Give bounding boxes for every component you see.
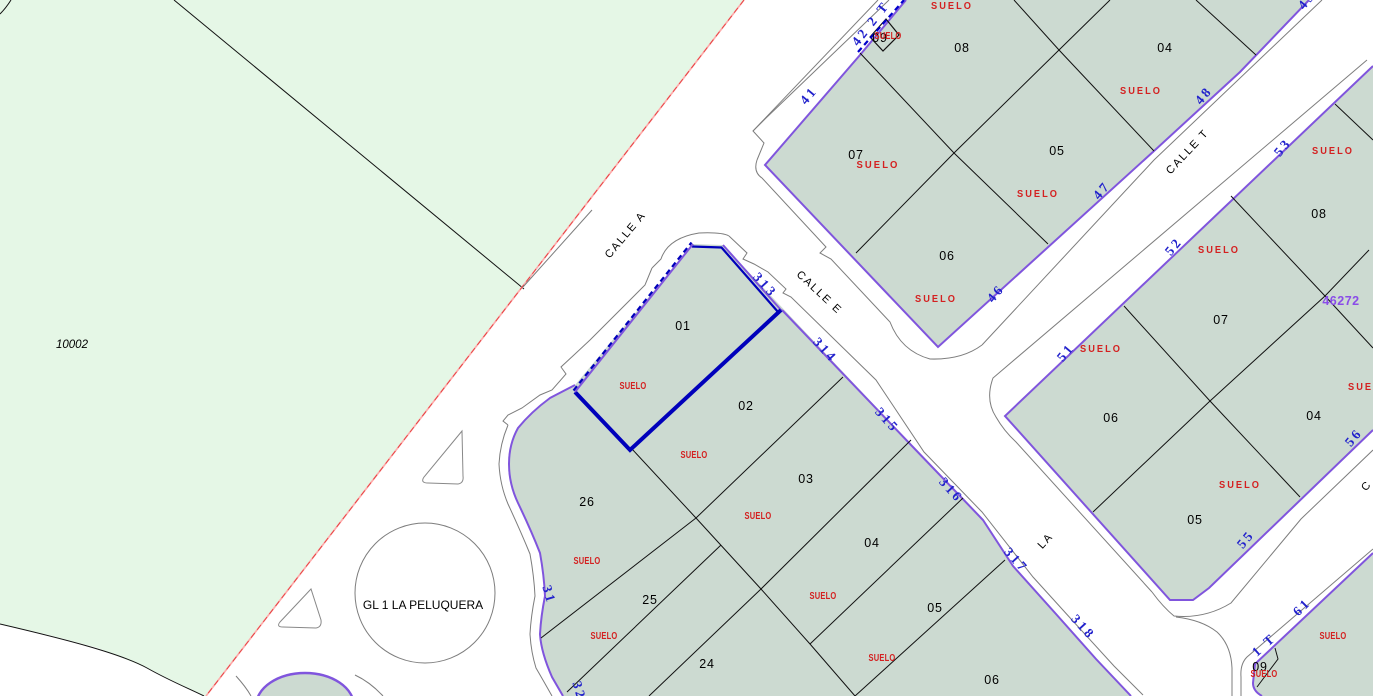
svg-text:SUELO: SUELO	[1320, 631, 1347, 642]
svg-text:24: 24	[699, 657, 715, 671]
svg-text:SUELO: SUELO	[1219, 480, 1261, 491]
svg-text:SUELO: SUELO	[620, 381, 647, 392]
svg-text:SUELO: SUELO	[1080, 344, 1122, 355]
svg-text:02: 02	[738, 399, 754, 413]
svg-text:04: 04	[1306, 409, 1322, 423]
svg-text:SUELO: SUELO	[1198, 245, 1240, 256]
svg-text:07: 07	[1213, 313, 1229, 327]
svg-text:04: 04	[1157, 41, 1173, 55]
svg-text:08: 08	[954, 41, 970, 55]
svg-text:SUELO: SUELO	[915, 294, 957, 305]
svg-text:06: 06	[939, 249, 955, 263]
svg-text:06: 06	[984, 673, 1000, 687]
svg-text:SUELO: SUELO	[681, 450, 708, 461]
svg-text:26: 26	[579, 495, 595, 509]
svg-text:10002: 10002	[56, 339, 89, 351]
svg-text:05: 05	[927, 601, 943, 615]
svg-text:05: 05	[1049, 144, 1065, 158]
svg-text:SUELO: SUELO	[591, 631, 618, 642]
svg-text:SUELO: SUELO	[1251, 669, 1278, 680]
svg-text:SUELO: SUELO	[810, 591, 837, 602]
svg-text:46272: 46272	[1322, 294, 1359, 308]
svg-text:SUELO: SUELO	[869, 653, 896, 664]
svg-text:25: 25	[642, 593, 658, 607]
svg-text:SUELO: SUELO	[745, 511, 772, 522]
svg-text:SUELO: SUELO	[1312, 146, 1354, 157]
svg-text:03: 03	[798, 472, 814, 486]
svg-text:SUELO: SUELO	[857, 160, 900, 171]
svg-text:SUELO: SUELO	[574, 556, 601, 567]
svg-text:SUELO: SUELO	[1120, 86, 1162, 97]
svg-text:04: 04	[864, 536, 880, 550]
svg-text:SUELO: SUELO	[1348, 382, 1373, 393]
svg-text:05: 05	[1187, 513, 1203, 527]
svg-text:08: 08	[1311, 207, 1327, 221]
svg-text:01: 01	[675, 319, 691, 333]
svg-text:SUELO: SUELO	[931, 1, 973, 12]
svg-text:SUELO: SUELO	[875, 31, 902, 42]
svg-text:SUELO: SUELO	[1017, 189, 1059, 200]
svg-text:GL 1 LA PELUQUERA: GL 1 LA PELUQUERA	[363, 598, 483, 612]
svg-text:06: 06	[1103, 411, 1119, 425]
